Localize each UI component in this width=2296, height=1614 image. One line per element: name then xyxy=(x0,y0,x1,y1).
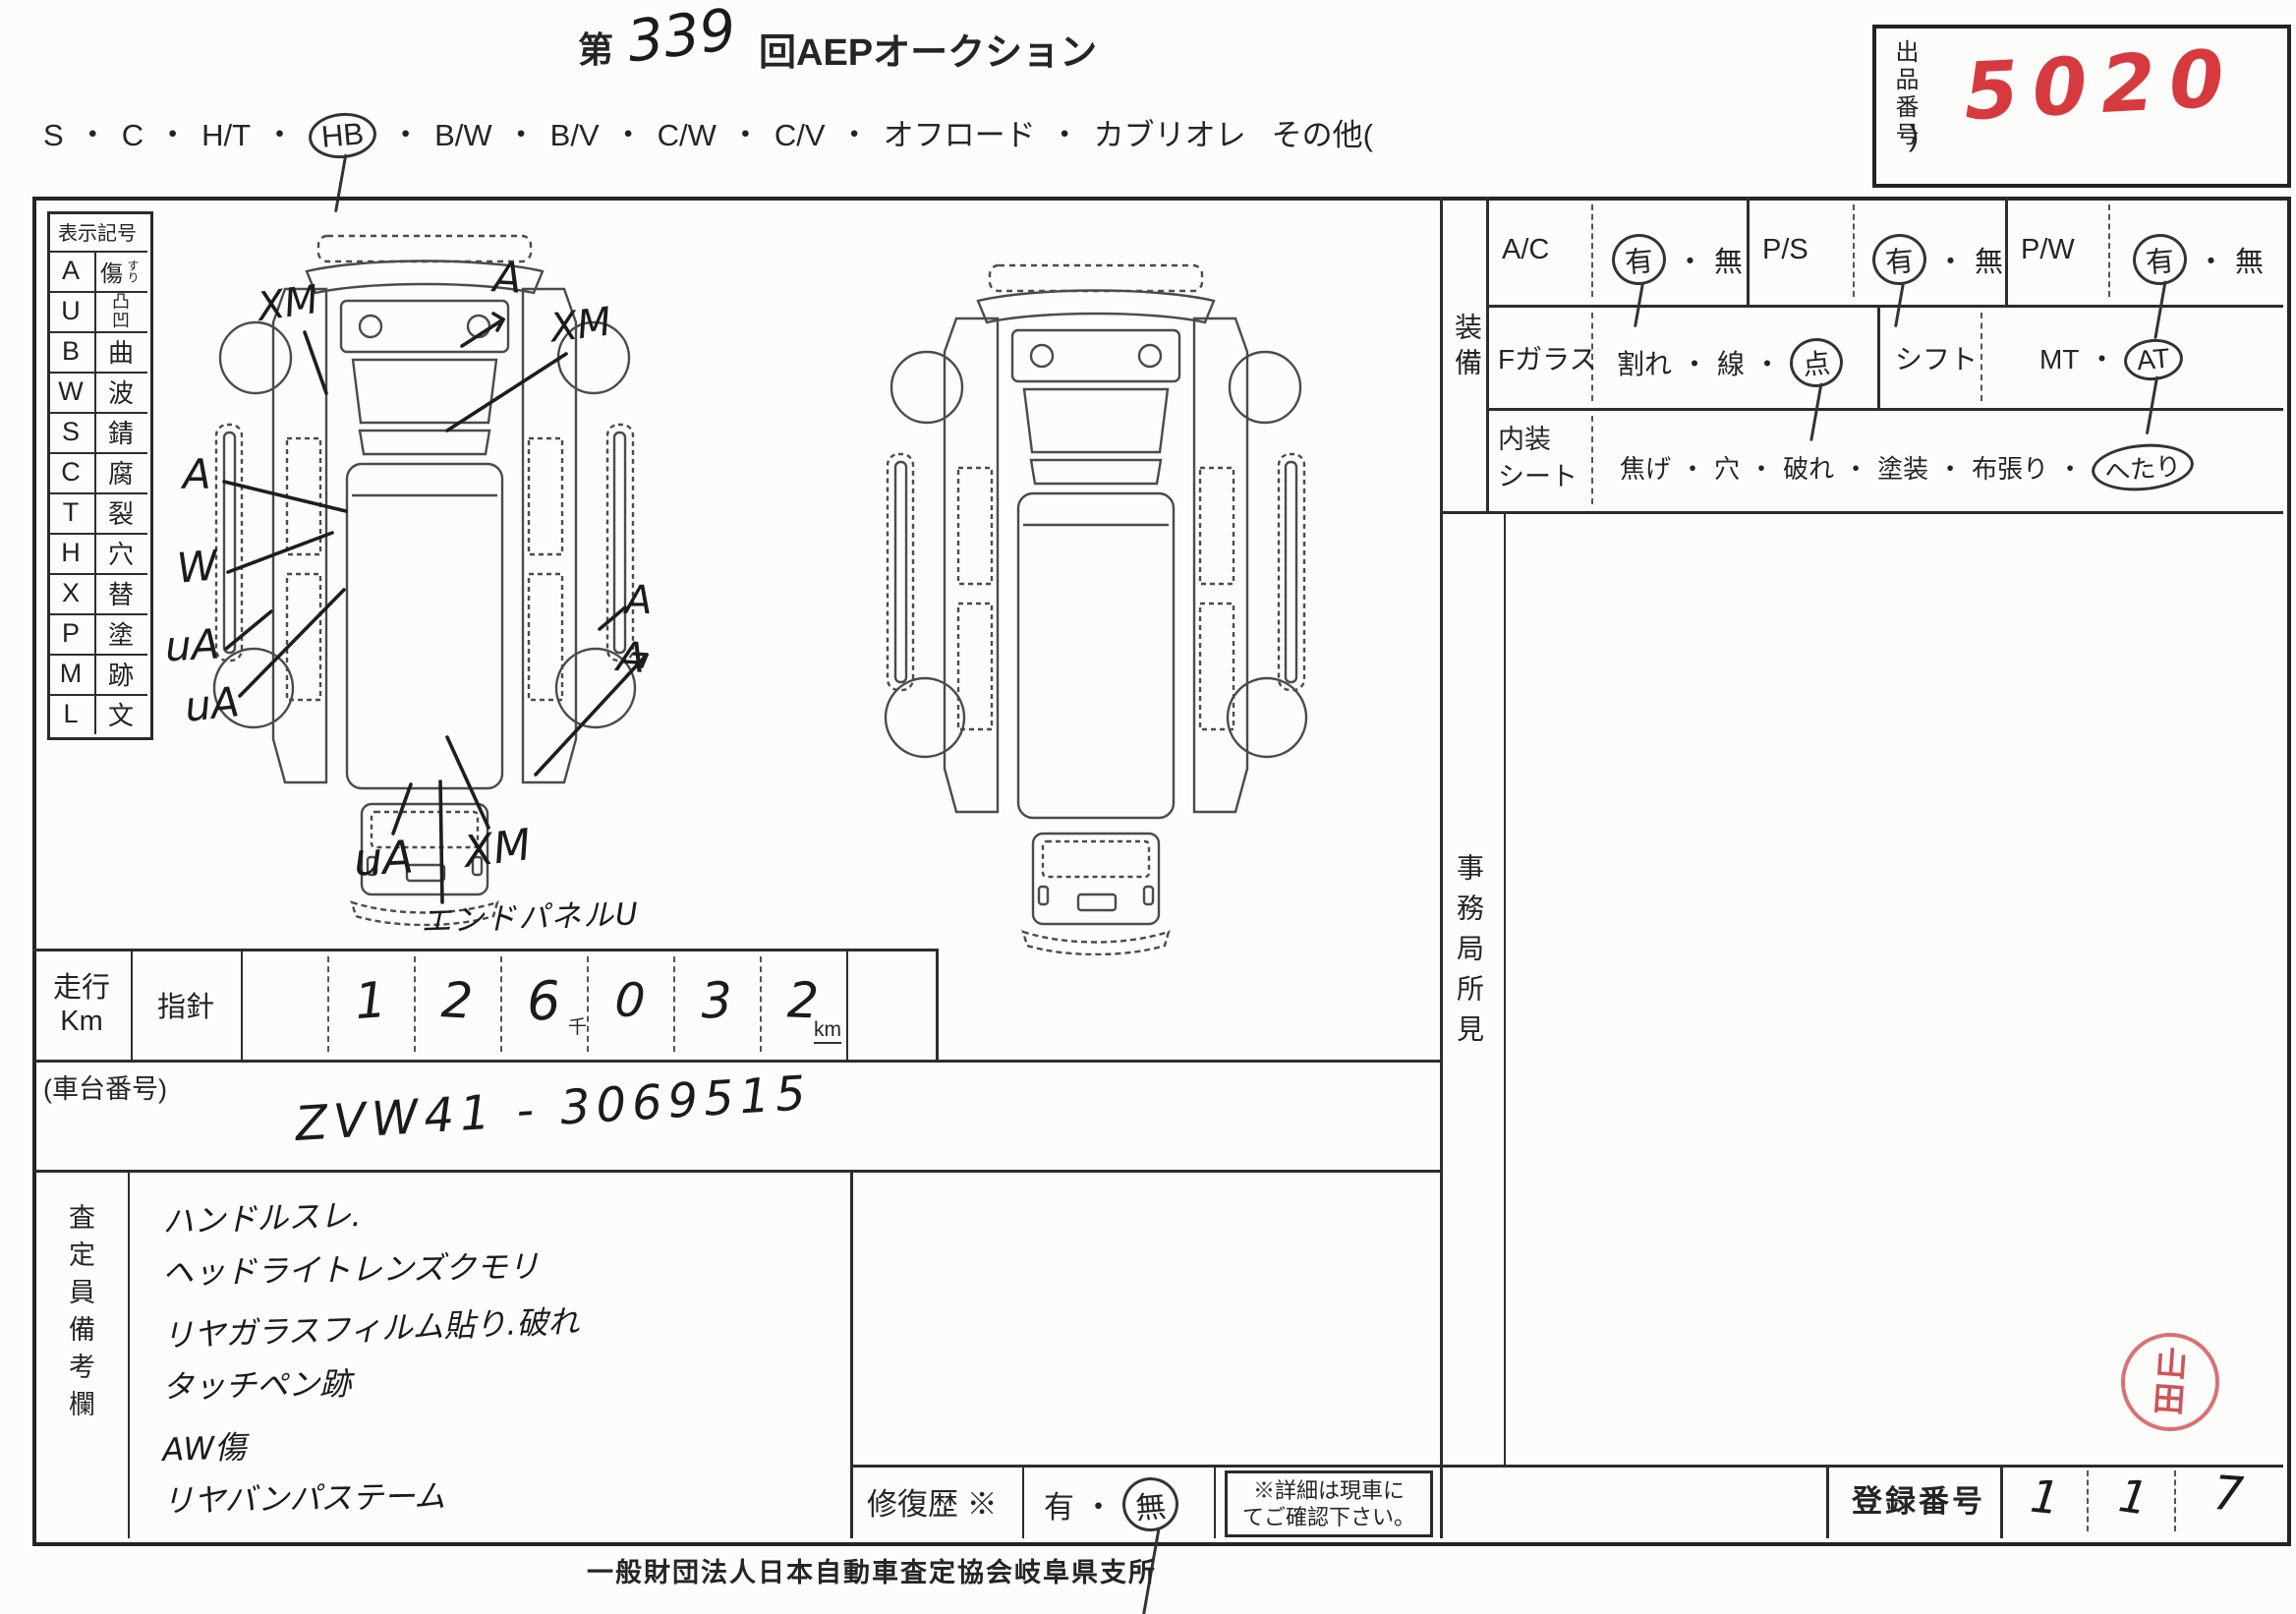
remark-line: リヤガラスフィルム貼り.破れ xyxy=(161,1288,840,1356)
symbol-code: H xyxy=(47,533,94,573)
symbol-meaning: 腐 xyxy=(94,452,147,492)
mileage-digit: 2 xyxy=(411,950,502,1052)
symbol-table-header: 表示記号 xyxy=(47,211,147,251)
symbol-meaning: 跡 xyxy=(94,654,147,694)
ps-options: 有・無 xyxy=(1872,234,2003,285)
remark-line: リヤバンパステーム xyxy=(162,1465,841,1522)
exhibit-number-value: 5020 xyxy=(1962,32,2240,138)
symbol-meaning: 塗 xyxy=(94,613,147,654)
shift-selected: AT xyxy=(2123,336,2185,382)
repair-label: 修復歴 ※ xyxy=(867,1479,998,1524)
round-number: 339 xyxy=(623,0,739,75)
body-type-option: B/V xyxy=(550,110,658,154)
pw-options: 有・無 xyxy=(2133,234,2264,285)
ac-label: A/C xyxy=(1502,234,1549,266)
ps-label: P/S xyxy=(1762,234,1808,266)
ac-selected: 有 xyxy=(1610,232,1668,288)
seat-option-ana: 穴 xyxy=(1714,454,1783,484)
front-glass-label: Fガラス xyxy=(1498,338,1597,377)
seat-option-nunohari: 布張り xyxy=(1972,454,2092,484)
symbol-code: C xyxy=(47,452,94,492)
body-type-selected: HB xyxy=(307,110,378,161)
seal-char: 山 xyxy=(2154,1346,2189,1383)
thousand-label: 千 xyxy=(568,1012,587,1039)
diagram-annotation: A xyxy=(492,253,523,302)
ps-selected: 有 xyxy=(1870,232,1928,288)
body-type-option: C/V xyxy=(775,110,884,154)
symbol-code: P xyxy=(47,613,94,654)
chassis-label: (車台番号) xyxy=(43,1067,167,1106)
interior-seat-label: 内装 シート xyxy=(1498,421,1578,495)
seat-option-tosou: 塗装 xyxy=(1877,454,1972,484)
seat-option-koge: 焦げ xyxy=(1620,454,1714,484)
shift-options: MTAT xyxy=(2039,338,2183,380)
seat-selected: へたり xyxy=(2090,440,2196,495)
diagram-annotation: W xyxy=(175,541,220,592)
body-type-row: SCH/THBB/WB/VC/WC/Vオフロードカブリオレその他() xyxy=(43,110,1919,158)
symbol-meaning: 文 xyxy=(94,694,147,734)
symbol-code: T xyxy=(47,492,94,533)
symbol-meaning: 曲 xyxy=(94,331,147,372)
repair-options: 有無 xyxy=(1044,1477,1178,1531)
registration-digit: 1 xyxy=(2028,1470,2062,1526)
symbol-code: W xyxy=(47,372,94,412)
repair-option-ari: 有 xyxy=(1044,1490,1122,1525)
car-diagram-right xyxy=(831,258,1361,955)
symbol-code: U xyxy=(47,291,94,331)
repair-selected: 無 xyxy=(1120,1475,1181,1534)
repair-note-line: ※詳細は現車に xyxy=(1253,1477,1405,1504)
diagram-annotation: uA xyxy=(183,677,242,731)
annotation-leader-lines xyxy=(147,197,698,963)
diagram-annotation: A xyxy=(183,450,211,498)
symbol-code: M xyxy=(47,654,94,694)
body-type-other-open: その他( xyxy=(1272,118,1373,152)
repair-note-box: ※詳細は現車に てご確認下さい。 xyxy=(1225,1470,1433,1537)
body-type-option: C xyxy=(122,110,201,154)
registration-digit: 7 xyxy=(2211,1466,2245,1523)
footer-text: 一般財団法人日本自動車査定協会岐阜県支所 xyxy=(587,1551,1157,1589)
mileage-digit: 0 xyxy=(584,949,677,1053)
symbol-code: A xyxy=(47,251,94,291)
diagram-caption: エンドパネルU xyxy=(420,889,640,941)
remarks-label: 査定員備考欄 xyxy=(61,1203,99,1427)
mileage-digit: 1 xyxy=(324,949,418,1053)
mileage-digit: 3 xyxy=(671,950,761,1051)
repair-note-line: てご確認下さい。 xyxy=(1242,1504,1415,1530)
symbol-meaning: 凸凹 xyxy=(94,291,147,331)
mileage-label: 走行Km xyxy=(32,949,131,1060)
diagram-annotation: uA xyxy=(353,830,415,886)
gauge-label: 指針 xyxy=(131,949,241,1060)
auction-inspection-sheet: 第 339 回AEPオークション SCH/THBB/WB/VC/WC/Vオフロー… xyxy=(0,0,2296,1614)
diagram-annotation: XM xyxy=(461,820,534,878)
body-type-option: S xyxy=(43,110,122,154)
glass-option-sen: 線 xyxy=(1717,349,1790,379)
km-label: km xyxy=(814,1018,841,1044)
symbol-meaning: 裂 xyxy=(94,492,147,533)
body-type-option: H/T xyxy=(201,110,309,154)
registration-label: 登録番号 xyxy=(1852,1476,1985,1521)
mileage-digit xyxy=(241,951,327,1050)
ps-option-nashi: 無 xyxy=(1975,247,2003,278)
ac-option-nashi: 無 xyxy=(1714,247,1743,278)
diagram-annotation: XM xyxy=(255,277,321,330)
pw-option-nashi: 無 xyxy=(2235,247,2264,278)
remark-line: タッチペン跡 xyxy=(162,1351,841,1408)
equipment-section-label: 装備 xyxy=(1447,313,1486,383)
page-title: 回AEPオークション xyxy=(759,22,1097,76)
symbol-meaning: 錆 xyxy=(94,412,147,452)
symbol-meaning: 波 xyxy=(94,372,147,412)
symbol-meaning: 替 xyxy=(94,573,147,613)
exhibit-number-label: 出品番号 xyxy=(1887,39,1922,149)
diagram-annotation: A xyxy=(625,578,652,623)
shift-option-mt: MT xyxy=(2039,344,2124,375)
body-type-option: C/W xyxy=(658,110,775,154)
symbol-meaning: 穴 xyxy=(94,533,147,573)
pw-selected: 有 xyxy=(2131,232,2189,288)
diagram-annotation: uA xyxy=(164,620,221,671)
body-type-option: オフロード xyxy=(884,110,1094,154)
diagram-annotation: A xyxy=(615,632,647,682)
seat-option-yabure: 破れ xyxy=(1783,454,1877,484)
glass-option-ware: 割れ xyxy=(1617,349,1717,379)
body-type-option: B/W xyxy=(434,110,550,154)
symbol-code: S xyxy=(47,412,94,452)
symbol-code: B xyxy=(47,331,94,372)
remark-line: AW傷 xyxy=(161,1402,840,1470)
diagram-annotation: XM xyxy=(547,299,613,351)
ac-options: 有・無 xyxy=(1612,234,1743,285)
glass-selected: 点 xyxy=(1788,336,1845,390)
body-type-option: カブリオレ xyxy=(1094,110,1246,154)
symbol-code: X xyxy=(47,573,94,613)
remark-line: ヘッドライトレンズクモリ xyxy=(162,1237,841,1294)
shift-label: シフト xyxy=(1895,338,1978,377)
pw-label: P/W xyxy=(2021,234,2075,266)
front-glass-options: 割れ線点 xyxy=(1617,338,1843,387)
title-prefix: 第 xyxy=(578,22,613,73)
symbol-meaning: 傷すり xyxy=(94,251,147,291)
interior-seat-options: 焦げ穴破れ塗装布張りへたり xyxy=(1620,444,2194,490)
symbol-code: L xyxy=(47,694,94,734)
remarks-content: ハンドルスレ. ヘッドライトレンズクモリ リヤガラスフィルム貼り.破れ タッチペ… xyxy=(162,1185,840,1516)
office-findings-label: 事務局所見 xyxy=(1449,853,1488,1055)
seal-char: 田 xyxy=(2152,1381,2186,1418)
